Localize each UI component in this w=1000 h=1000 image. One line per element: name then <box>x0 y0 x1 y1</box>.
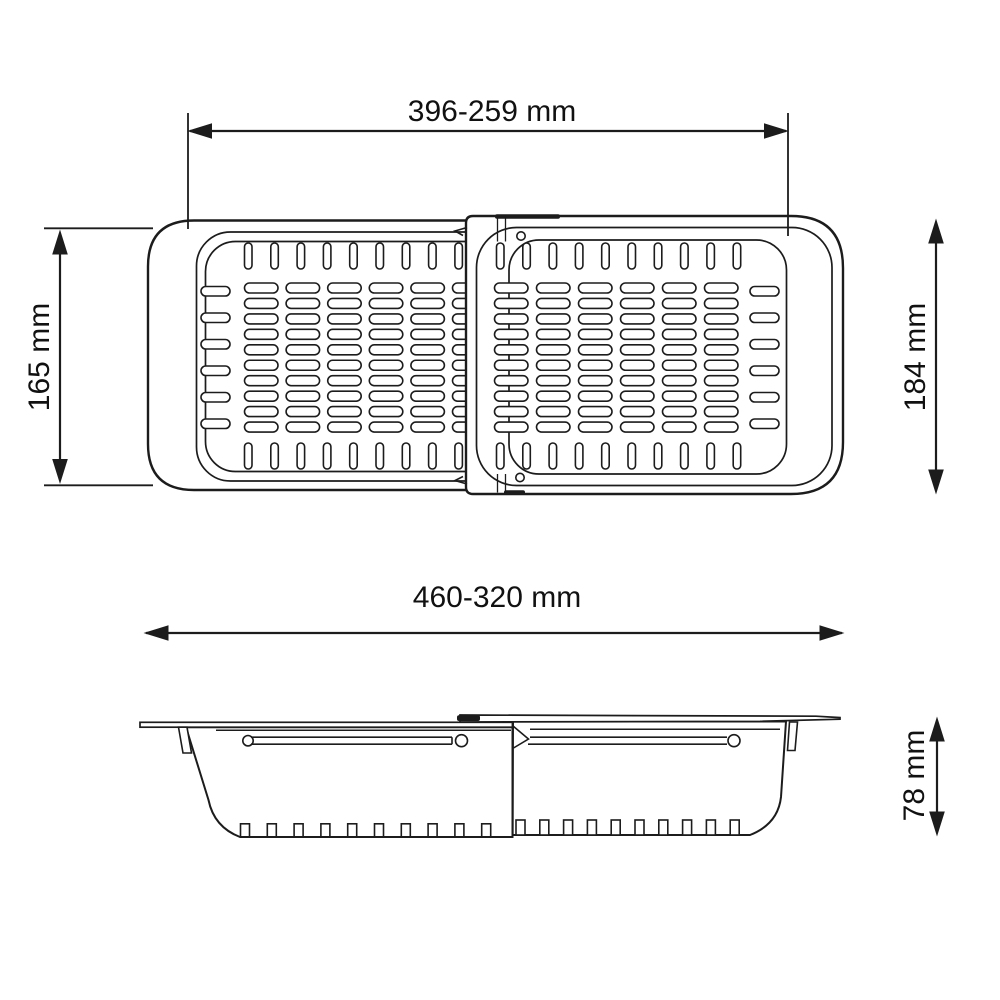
drain-slot-vertical <box>497 243 505 269</box>
drain-foot <box>267 824 276 837</box>
drain-slot-horizontal <box>495 422 529 432</box>
dimension-label-top-width: 396-259 mm <box>408 95 576 128</box>
drain-slot-horizontal <box>369 329 403 339</box>
drain-slot-horizontal <box>201 313 230 323</box>
drain-slot-horizontal <box>537 283 571 293</box>
drain-slot-horizontal <box>750 287 779 297</box>
drain-foot <box>321 824 330 837</box>
drain-slot-vertical <box>602 443 610 469</box>
dimension-label-left-height: 165 mm <box>23 303 56 411</box>
drain-slot-horizontal <box>537 314 571 324</box>
drain-slot-horizontal <box>369 422 403 432</box>
drain-slot-horizontal <box>663 360 697 370</box>
drain-slot-horizontal <box>663 329 697 339</box>
drain-foot <box>401 824 410 837</box>
drain-slot-vertical <box>523 443 531 469</box>
dimension-side-height: 78 mm <box>898 717 945 837</box>
drain-foot <box>516 820 525 835</box>
arrowhead-left <box>144 625 169 641</box>
drain-slot-horizontal <box>705 329 739 339</box>
drain-slot-horizontal <box>705 360 739 370</box>
drain-slot-vertical <box>323 243 331 269</box>
drain-slot-vertical <box>429 243 437 269</box>
drain-slot-vertical <box>575 243 583 269</box>
drain-slot-vertical <box>549 243 557 269</box>
side-joint-weld-mark <box>457 715 480 721</box>
drain-slot-horizontal <box>621 329 655 339</box>
drain-slot-horizontal <box>537 391 571 401</box>
drain-slot-horizontal <box>369 391 403 401</box>
drain-slot-vertical <box>733 443 741 469</box>
drain-slot-vertical <box>455 243 463 269</box>
drain-slot-horizontal <box>537 422 571 432</box>
drain-slot-horizontal <box>245 298 279 308</box>
drain-slot-horizontal <box>537 360 571 370</box>
drain-slot-horizontal <box>705 298 739 308</box>
side-view-left-half <box>140 722 513 837</box>
drain-slot-horizontal <box>201 419 230 429</box>
drain-slot-horizontal <box>369 407 403 417</box>
right-body-outline <box>513 722 787 836</box>
drain-slot-horizontal <box>245 314 279 324</box>
drain-slot-horizontal <box>705 422 739 432</box>
drain-slot-horizontal <box>579 360 613 370</box>
drain-slot-horizontal <box>537 298 571 308</box>
drain-slot-vertical <box>402 443 410 469</box>
drain-slot-horizontal <box>328 360 362 370</box>
drain-slot-vertical <box>245 243 253 269</box>
drain-slot-horizontal <box>286 360 320 370</box>
joint-weld-mark-bottom <box>504 490 525 494</box>
drain-slot-horizontal <box>286 422 320 432</box>
drain-slot-horizontal <box>286 283 320 293</box>
drain-foot <box>564 820 573 835</box>
drain-slot-vertical <box>497 443 505 469</box>
drain-slot-horizontal <box>663 376 697 386</box>
drain-slot-vertical <box>681 443 689 469</box>
drain-slot-horizontal <box>705 407 739 417</box>
drain-slot-horizontal <box>579 298 613 308</box>
drain-slot-horizontal <box>495 345 529 355</box>
drain-slot-vertical <box>245 443 253 469</box>
drain-slot-horizontal <box>663 314 697 324</box>
arrowhead-down <box>928 470 944 495</box>
drain-slot-horizontal <box>495 391 529 401</box>
drain-slot-horizontal <box>411 391 445 401</box>
drain-slot-horizontal <box>245 329 279 339</box>
drain-slot-horizontal <box>201 393 230 403</box>
drain-slot-horizontal <box>495 360 529 370</box>
drain-foot <box>241 824 250 837</box>
drain-slot-horizontal <box>621 314 655 324</box>
drain-slot-horizontal <box>663 345 697 355</box>
left-handle-slot-pin <box>456 735 468 747</box>
drain-slot-horizontal <box>621 422 655 432</box>
drain-foot <box>587 820 596 835</box>
drain-slot-horizontal <box>369 314 403 324</box>
side-view-right-half <box>457 715 840 836</box>
dimension-label-overall-width: 460-320 mm <box>413 581 581 614</box>
drain-slot-horizontal <box>579 329 613 339</box>
drain-slot-horizontal <box>579 314 613 324</box>
drain-foot <box>611 820 620 835</box>
drain-slot-horizontal <box>495 298 529 308</box>
drain-slot-vertical <box>602 243 610 269</box>
drain-slot-horizontal <box>411 283 445 293</box>
drain-slot-horizontal <box>705 391 739 401</box>
drain-slot-horizontal <box>245 376 279 386</box>
drain-slot-vertical <box>350 443 358 469</box>
drain-slot-vertical <box>523 243 531 269</box>
drain-slot-horizontal <box>286 407 320 417</box>
drain-slot-horizontal <box>537 345 571 355</box>
drain-slot-horizontal <box>369 376 403 386</box>
drain-slot-horizontal <box>328 422 362 432</box>
arrowhead-down <box>52 459 68 484</box>
drain-foot <box>540 820 549 835</box>
drain-slot-horizontal <box>245 391 279 401</box>
drain-slot-horizontal <box>201 340 230 350</box>
arrowhead-left <box>187 123 212 139</box>
drain-slot-vertical <box>376 443 384 469</box>
top-view-right-half <box>455 214 843 494</box>
joint-weld-mark-top <box>495 214 560 219</box>
drain-slot-horizontal <box>579 376 613 386</box>
side-view <box>140 715 840 837</box>
drain-slot-horizontal <box>495 329 529 339</box>
drain-slot-horizontal <box>705 345 739 355</box>
drain-slot-horizontal <box>579 422 613 432</box>
drain-slot-vertical <box>628 243 636 269</box>
drain-slot-horizontal <box>411 345 445 355</box>
drain-slot-horizontal <box>663 422 697 432</box>
drain-slot-horizontal <box>369 360 403 370</box>
drain-slot-vertical <box>733 243 741 269</box>
drain-foot <box>294 824 303 837</box>
drain-slot-horizontal <box>495 376 529 386</box>
drain-slot-vertical <box>429 443 437 469</box>
dimension-left-height: 165 mm <box>23 228 153 485</box>
drain-slot-vertical <box>376 243 384 269</box>
drain-slot-horizontal <box>579 407 613 417</box>
drain-slot-horizontal <box>328 376 362 386</box>
drain-slot-horizontal <box>411 422 445 432</box>
drain-slot-horizontal <box>750 393 779 403</box>
drain-slot-horizontal <box>286 391 320 401</box>
drain-slot-horizontal <box>286 329 320 339</box>
drain-foot <box>428 824 437 837</box>
drain-slot-horizontal <box>705 376 739 386</box>
drain-slot-horizontal <box>663 283 697 293</box>
arrowhead-up <box>929 717 945 742</box>
dimension-overall-width: 460-320 mm <box>144 581 845 641</box>
drain-slot-vertical <box>350 243 358 269</box>
drain-slot-horizontal <box>328 345 362 355</box>
arrowhead-right <box>820 625 845 641</box>
drain-slot-horizontal <box>286 298 320 308</box>
drain-slot-horizontal <box>411 298 445 308</box>
drain-slot-vertical <box>455 443 463 469</box>
drain-slot-horizontal <box>495 407 529 417</box>
drain-slot-horizontal <box>328 283 362 293</box>
drain-foot <box>683 820 692 835</box>
drain-foot <box>375 824 384 837</box>
drain-slot-horizontal <box>621 407 655 417</box>
drain-slot-horizontal <box>328 314 362 324</box>
drain-slot-horizontal <box>705 283 739 293</box>
right-hanger-bracket <box>788 722 798 751</box>
drain-slot-horizontal <box>411 329 445 339</box>
drain-slot-horizontal <box>750 313 779 323</box>
drain-slot-horizontal <box>663 407 697 417</box>
drain-slot-vertical <box>681 243 689 269</box>
drain-slot-horizontal <box>705 314 739 324</box>
drain-slot-horizontal <box>750 366 779 376</box>
drain-slot-horizontal <box>621 360 655 370</box>
drain-slot-horizontal <box>328 391 362 401</box>
arrowhead-up <box>928 219 944 244</box>
drain-slot-horizontal <box>411 314 445 324</box>
drain-slot-vertical <box>271 243 279 269</box>
drain-foot <box>455 824 464 837</box>
drain-slot-vertical <box>575 443 583 469</box>
drain-slot-horizontal <box>621 376 655 386</box>
drain-slot-horizontal <box>579 283 613 293</box>
drain-slot-horizontal <box>245 283 279 293</box>
drain-slot-horizontal <box>579 391 613 401</box>
drain-slot-vertical <box>549 443 557 469</box>
drain-slot-horizontal <box>579 345 613 355</box>
arrowhead-right <box>764 123 789 139</box>
drain-slot-horizontal <box>750 340 779 350</box>
drain-slot-vertical <box>628 443 636 469</box>
drain-slot-vertical <box>271 443 279 469</box>
drain-slot-vertical <box>297 243 305 269</box>
right-handle-slot-pin <box>728 735 740 747</box>
drain-slot-horizontal <box>663 298 697 308</box>
drain-slot-horizontal <box>621 298 655 308</box>
drain-slot-horizontal <box>411 407 445 417</box>
drain-slot-horizontal <box>245 407 279 417</box>
drain-slot-horizontal <box>328 298 362 308</box>
drain-slot-horizontal <box>245 345 279 355</box>
top-view <box>148 214 843 494</box>
drain-slot-vertical <box>654 443 662 469</box>
drain-slot-horizontal <box>245 422 279 432</box>
right-rim-flange <box>460 715 840 722</box>
drain-slot-vertical <box>323 443 331 469</box>
left-rim-flange <box>140 722 513 727</box>
drain-slot-horizontal <box>201 287 230 297</box>
drain-slot-horizontal <box>621 391 655 401</box>
drain-slot-horizontal <box>328 407 362 417</box>
drain-foot <box>659 820 668 835</box>
drain-foot <box>348 824 357 837</box>
drain-slot-horizontal <box>201 366 230 376</box>
drain-slot-horizontal <box>537 407 571 417</box>
drain-slot-horizontal <box>286 345 320 355</box>
drain-slot-horizontal <box>245 360 279 370</box>
arrowhead-down <box>929 812 945 837</box>
drain-slot-horizontal <box>537 329 571 339</box>
drain-slot-vertical <box>707 443 715 469</box>
drain-slot-horizontal <box>411 360 445 370</box>
drain-slot-horizontal <box>286 314 320 324</box>
colander-dimension-drawing: 396-259 mm 165 mm 184 mm 460-320 mm <box>0 0 1000 1000</box>
drain-foot <box>635 820 644 835</box>
drain-slot-horizontal <box>621 283 655 293</box>
drain-slot-horizontal <box>369 298 403 308</box>
technical-drawing-canvas: 396-259 mm 165 mm 184 mm 460-320 mm <box>0 0 1000 1000</box>
drain-slot-horizontal <box>369 345 403 355</box>
drain-slot-horizontal <box>369 283 403 293</box>
drain-slot-horizontal <box>328 329 362 339</box>
drain-slot-vertical <box>654 243 662 269</box>
drain-foot <box>706 820 715 835</box>
arrowhead-up <box>52 230 68 255</box>
drain-slot-horizontal <box>495 314 529 324</box>
drain-slot-horizontal <box>411 376 445 386</box>
drain-slot-vertical <box>297 443 305 469</box>
dimension-label-right-height: 184 mm <box>899 303 932 411</box>
drain-foot <box>730 820 739 835</box>
drain-slot-horizontal <box>537 376 571 386</box>
drain-slot-horizontal <box>750 419 779 429</box>
drain-slot-vertical <box>707 243 715 269</box>
drain-foot <box>482 824 491 837</box>
dimension-right-height: 184 mm <box>899 219 944 495</box>
drain-slot-vertical <box>402 243 410 269</box>
drain-slot-horizontal <box>621 345 655 355</box>
drain-slot-horizontal <box>286 376 320 386</box>
drain-slot-horizontal <box>495 283 529 293</box>
drain-slot-horizontal <box>663 391 697 401</box>
dimension-label-side-height: 78 mm <box>898 730 931 822</box>
